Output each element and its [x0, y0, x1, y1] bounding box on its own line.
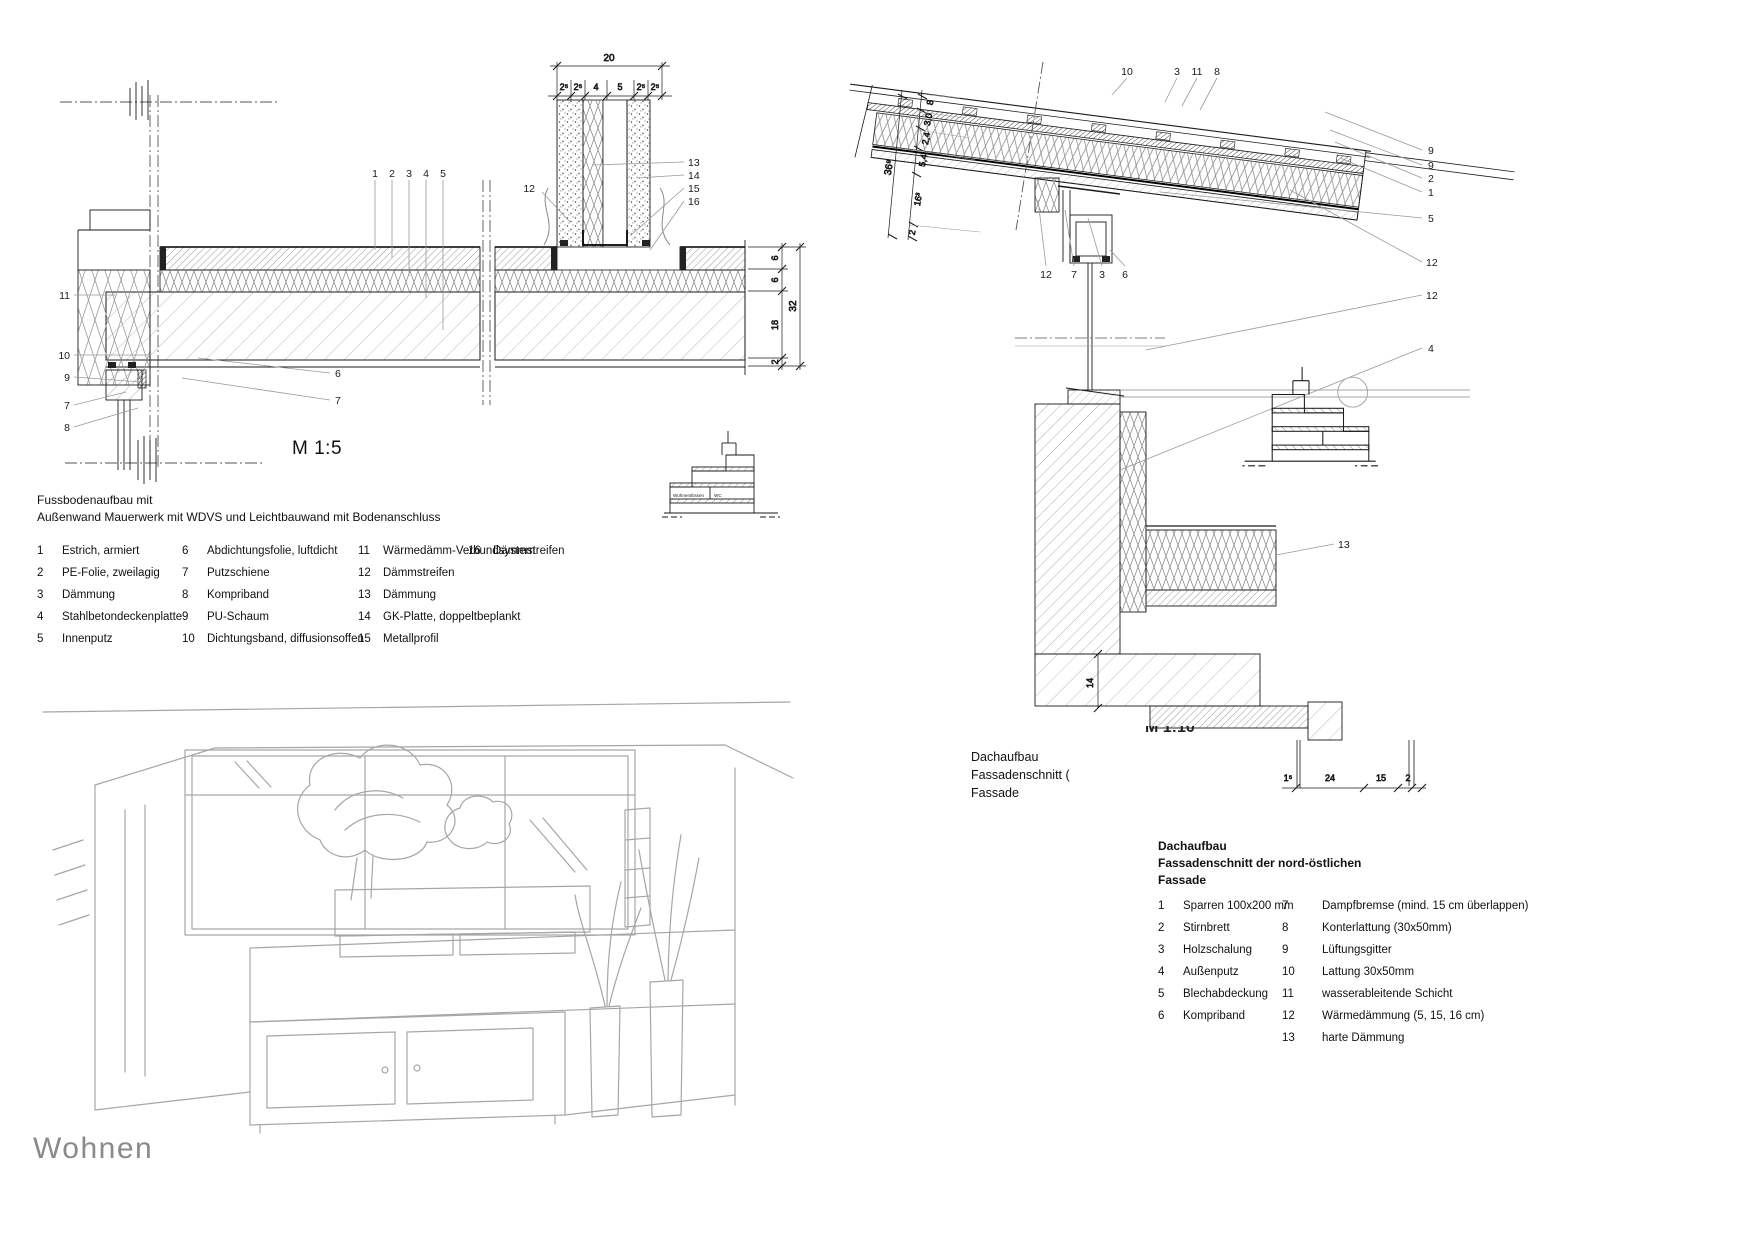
dim-label: 6 [770, 277, 780, 282]
roof-caption: Dachaufbau Fassadenschnitt ( Fassade [971, 748, 1070, 802]
callout-14: 14 [688, 170, 700, 182]
legend-row: 14GK-Platte, doppeltbeplankt [358, 611, 535, 633]
dim-label: 1⁵ [1284, 773, 1293, 783]
callout-6-mid: 6 [1122, 269, 1128, 281]
roof-bottom-dimension: 1⁵ 24 15 2 [1282, 773, 1426, 792]
callout-15: 15 [688, 183, 700, 195]
legend-text: Konterlattung (30x50mm) [1322, 922, 1452, 934]
legend-text: Dichtungsband, diffusionsoffen [207, 633, 364, 645]
dim-label: 2,4 [920, 131, 932, 145]
legend-text: Lüftungsgitter [1322, 944, 1392, 956]
roof-legend-title-3: Fassade [1158, 872, 1361, 889]
legend-row: 9PU-Schaum [182, 611, 364, 633]
dim-label: 8 [925, 99, 936, 106]
legend-text: Dampfbremse (mind. 15 cm überlappen) [1322, 900, 1528, 912]
legend-text: Außenputz [1183, 966, 1239, 978]
legend-row: 3Holzschalung [1158, 944, 1294, 966]
dim-label: 4 [593, 82, 598, 92]
callout-9: 9 [1428, 145, 1434, 157]
legend-num: 7 [1282, 900, 1322, 912]
callout-9b: 9 [1428, 160, 1434, 172]
legend-row: 5Innenputz [37, 633, 182, 655]
dim-label: 2⁵ [651, 82, 660, 92]
callout-5: 5 [440, 168, 446, 180]
dim-label: 6 [770, 255, 780, 260]
legend-row: 12Wärmedämmung (5, 15, 16 cm) [1282, 1010, 1528, 1032]
legend-row: 4Stahlbetondeckenplatte [37, 611, 182, 633]
legend-row: 16Dämmstreifen [468, 545, 565, 567]
roof-legend-col-2: 7Dampfbremse (mind. 15 cm überlappen) 8K… [1282, 900, 1528, 1054]
roof-scale-text: M 1:10 [1145, 726, 1235, 733]
legend-text: Innenputz [62, 633, 113, 645]
legend-row: 8Konterlattung (30x50mm) [1282, 922, 1528, 944]
keyplan-room-label: Wohnen/Essen [673, 493, 705, 498]
drawing-sheet: 2⁵ 2⁵ 4 5 2⁵ 2⁵ 20 6 6 18 2 32 [0, 0, 1754, 1240]
callout-16: 16 [688, 196, 700, 208]
legend-text: Sparren 100x200 mm [1183, 900, 1294, 912]
legend-row: 3Dämmung [37, 589, 182, 611]
roof-caption-line3: Fassade [971, 784, 1070, 802]
callout-10: 10 [1121, 66, 1133, 78]
legend-num: 12 [1282, 1010, 1322, 1022]
legend-num: 6 [182, 545, 207, 557]
callout-11: 11 [59, 290, 70, 302]
dim-label: 2⁵ [637, 82, 646, 92]
roof-detail-drawing: 8 3,0 2,4 5,4 16³ 2 36⁹ 1⁵ 24 15 2 [830, 50, 1475, 810]
legend-num: 4 [1158, 966, 1183, 978]
legend-num: 13 [358, 589, 383, 601]
callout-2: 2 [1428, 173, 1434, 185]
callout-1: 1 [1428, 187, 1434, 199]
legend-text: harte Dämmung [1322, 1032, 1404, 1044]
legend-row: 15Metallprofil [358, 633, 535, 655]
legend-row: 5Blechabdeckung [1158, 988, 1294, 1010]
legend-row: 10Lattung 30x50mm [1282, 966, 1528, 988]
dim-label: 3,0 [922, 112, 934, 126]
legend-row: 2PE-Folie, zweilagig [37, 567, 182, 589]
floor-scale-label: M 1:5 [292, 438, 342, 460]
callout-13: 13 [1338, 539, 1350, 551]
legend-num: 1 [37, 545, 62, 557]
callout-3: 3 [406, 168, 412, 180]
legend-row: 10Dichtungsband, diffusionsoffen [182, 633, 364, 655]
floor-right-dimension: 6 6 18 2 32 [748, 243, 806, 370]
floor-legend-col-1: 1Estrich, armiert 2PE-Folie, zweilagig 3… [37, 545, 182, 655]
legend-text: Blechabdeckung [1183, 988, 1268, 1000]
legend-row: 6Abdichtungsfolie, luftdicht [182, 545, 364, 567]
roof-legend-col-1: 1Sparren 100x200 mm 2Stirnbrett 3Holzsch… [1158, 900, 1294, 1032]
lightweight-wall [544, 100, 670, 247]
keyplan-floor: Wohnen/Essen WC [662, 425, 780, 525]
legend-row: 11wasserableitende Schicht [1282, 988, 1528, 1010]
keyplan-room-label: WC [714, 493, 722, 498]
legend-text: PE-Folie, zweilagig [62, 567, 160, 579]
legend-num: 5 [37, 633, 62, 645]
callout-11: 11 [1192, 66, 1203, 78]
legend-num: 8 [1282, 922, 1322, 934]
floor-legend-title-2: Außenwand Mauerwerk mit WDVS und Leichtb… [37, 509, 441, 526]
legend-num: 16 [468, 545, 493, 557]
legend-num: 10 [1282, 966, 1322, 978]
callout-3: 3 [1174, 66, 1180, 78]
legend-text: PU-Schaum [207, 611, 269, 623]
legend-row: 9Lüftungsgitter [1282, 944, 1528, 966]
floor-top-dimension: 2⁵ 2⁵ 4 5 2⁵ 2⁵ 20 [548, 53, 672, 100]
legend-row: 13Dämmung [358, 589, 535, 611]
legend-num: 2 [37, 567, 62, 579]
callout-5: 5 [1428, 213, 1434, 225]
legend-num: 9 [1282, 944, 1322, 956]
dim-overall: 20 [603, 53, 615, 64]
legend-text: Dämmung [383, 589, 436, 601]
legend-num: 11 [1282, 988, 1322, 1000]
dim-label: 5,4 [917, 153, 929, 167]
page-title: Wohnen [33, 1132, 153, 1166]
legend-text: Putzschiene [207, 567, 270, 579]
callout-8: 8 [1214, 66, 1220, 78]
callout-12: 12 [1426, 257, 1438, 269]
floor-legend-title-1: Fussbodenaufbau mit [37, 492, 152, 509]
callout-3-mid: 3 [1099, 269, 1105, 281]
exterior-wall-wdvs [78, 210, 150, 470]
roof-legend-title-2: Fassadenschnitt der nord-östlichen [1158, 855, 1361, 872]
legend-num: 15 [358, 633, 383, 645]
dim-label: 16³ [912, 192, 924, 207]
legend-row: 6Kompriband [1158, 1010, 1294, 1032]
legend-text: Dämmstreifen [383, 567, 455, 579]
callout-1: 1 [372, 168, 378, 180]
dim-overall: 32 [788, 300, 799, 312]
dim-label: 2 [770, 359, 780, 364]
legend-text: Dämmung [62, 589, 115, 601]
dim-label: 24 [1325, 773, 1335, 783]
legend-num: 11 [358, 545, 383, 557]
dim-label: 14 [1085, 678, 1095, 688]
living-room-sketch [35, 690, 805, 1135]
legend-num: 3 [37, 589, 62, 601]
legend-num: 6 [1158, 1010, 1183, 1022]
dim-label: 2⁵ [574, 82, 583, 92]
legend-num: 10 [182, 633, 207, 645]
callout-13: 13 [688, 157, 700, 169]
floor-slab-left [106, 247, 480, 367]
callout-7: 7 [64, 400, 70, 412]
legend-text: Abdichtungsfolie, luftdicht [207, 545, 337, 557]
legend-row: 12Dämmstreifen [358, 567, 535, 589]
callout-10: 10 [58, 350, 70, 362]
callout-2: 2 [389, 168, 395, 180]
callout-12: 12 [523, 183, 535, 195]
dim-label: 2⁵ [560, 82, 569, 92]
callout-4: 4 [423, 168, 429, 180]
dim-label: 2 [907, 229, 918, 236]
dim-label: 2 [1405, 773, 1410, 783]
legend-text: Kompriband [1183, 1010, 1245, 1022]
legend-row: 4Außenputz [1158, 966, 1294, 988]
legend-text: Lattung 30x50mm [1322, 966, 1414, 978]
legend-row: 8Kompriband [182, 589, 364, 611]
legend-row: 13harte Dämmung [1282, 1032, 1528, 1054]
dim-label: 5 [617, 82, 622, 92]
legend-num: 2 [1158, 922, 1183, 934]
legend-text: Holzschalung [1183, 944, 1252, 956]
legend-num: 3 [1158, 944, 1183, 956]
dim-label: 18 [770, 320, 780, 330]
floor-legend-col-2: 6Abdichtungsfolie, luftdicht 7Putzschien… [182, 545, 364, 655]
roof-legend-title-1: Dachaufbau [1158, 838, 1361, 855]
legend-text: Wärmedämmung (5, 15, 16 cm) [1322, 1010, 1484, 1022]
floor-slab-right [495, 240, 745, 375]
legend-num: 9 [182, 611, 207, 623]
callout-7-mid: 7 [1071, 269, 1077, 281]
legend-text: GK-Platte, doppeltbeplankt [383, 611, 520, 623]
legend-row: 7Dampfbremse (mind. 15 cm überlappen) [1282, 900, 1528, 922]
roof-caption-line1: Dachaufbau [971, 748, 1070, 766]
callout-12-mid: 12 [1040, 269, 1052, 281]
legend-text: Stirnbrett [1183, 922, 1230, 934]
legend-row: 1Estrich, armiert [37, 545, 182, 567]
legend-text: Dämmstreifen [493, 545, 565, 557]
legend-num: 8 [182, 589, 207, 601]
roof-scale-label-clipped: M 1:10 [1145, 726, 1235, 733]
roof-caption-line2: Fassadenschnitt ( [971, 766, 1070, 784]
legend-num: 4 [37, 611, 62, 623]
legend-num: 1 [1158, 900, 1183, 912]
legend-num: 14 [358, 611, 383, 623]
callout-12b: 12 [1426, 290, 1438, 302]
callout-6-inner: 6 [335, 368, 341, 380]
legend-text: Estrich, armiert [62, 545, 139, 557]
legend-text: Metallprofil [383, 633, 439, 645]
legend-text: Stahlbetondeckenplatte [62, 611, 182, 623]
legend-num: 7 [182, 567, 207, 579]
legend-row: 1Sparren 100x200 mm [1158, 900, 1294, 922]
callout-4: 4 [1428, 343, 1434, 355]
eave-and-window [1015, 178, 1165, 404]
legend-text: Kompriband [207, 589, 269, 601]
keyplan-roof [1238, 352, 1378, 482]
roof-legend-title: Dachaufbau Fassadenschnitt der nord-östl… [1158, 838, 1361, 889]
legend-row: 2Stirnbrett [1158, 922, 1294, 944]
legend-text: wasserableitende Schicht [1322, 988, 1452, 1000]
legend-num: 5 [1158, 988, 1183, 1000]
floor-legend-col-4: 16Dämmstreifen [468, 545, 565, 567]
legend-num: 13 [1282, 1032, 1322, 1044]
dim-label: 15 [1376, 773, 1386, 783]
legend-num: 12 [358, 567, 383, 579]
callout-9: 9 [64, 372, 70, 384]
callout-7-inner: 7 [335, 395, 341, 407]
legend-row: 7Putzschiene [182, 567, 364, 589]
callout-8: 8 [64, 422, 70, 434]
